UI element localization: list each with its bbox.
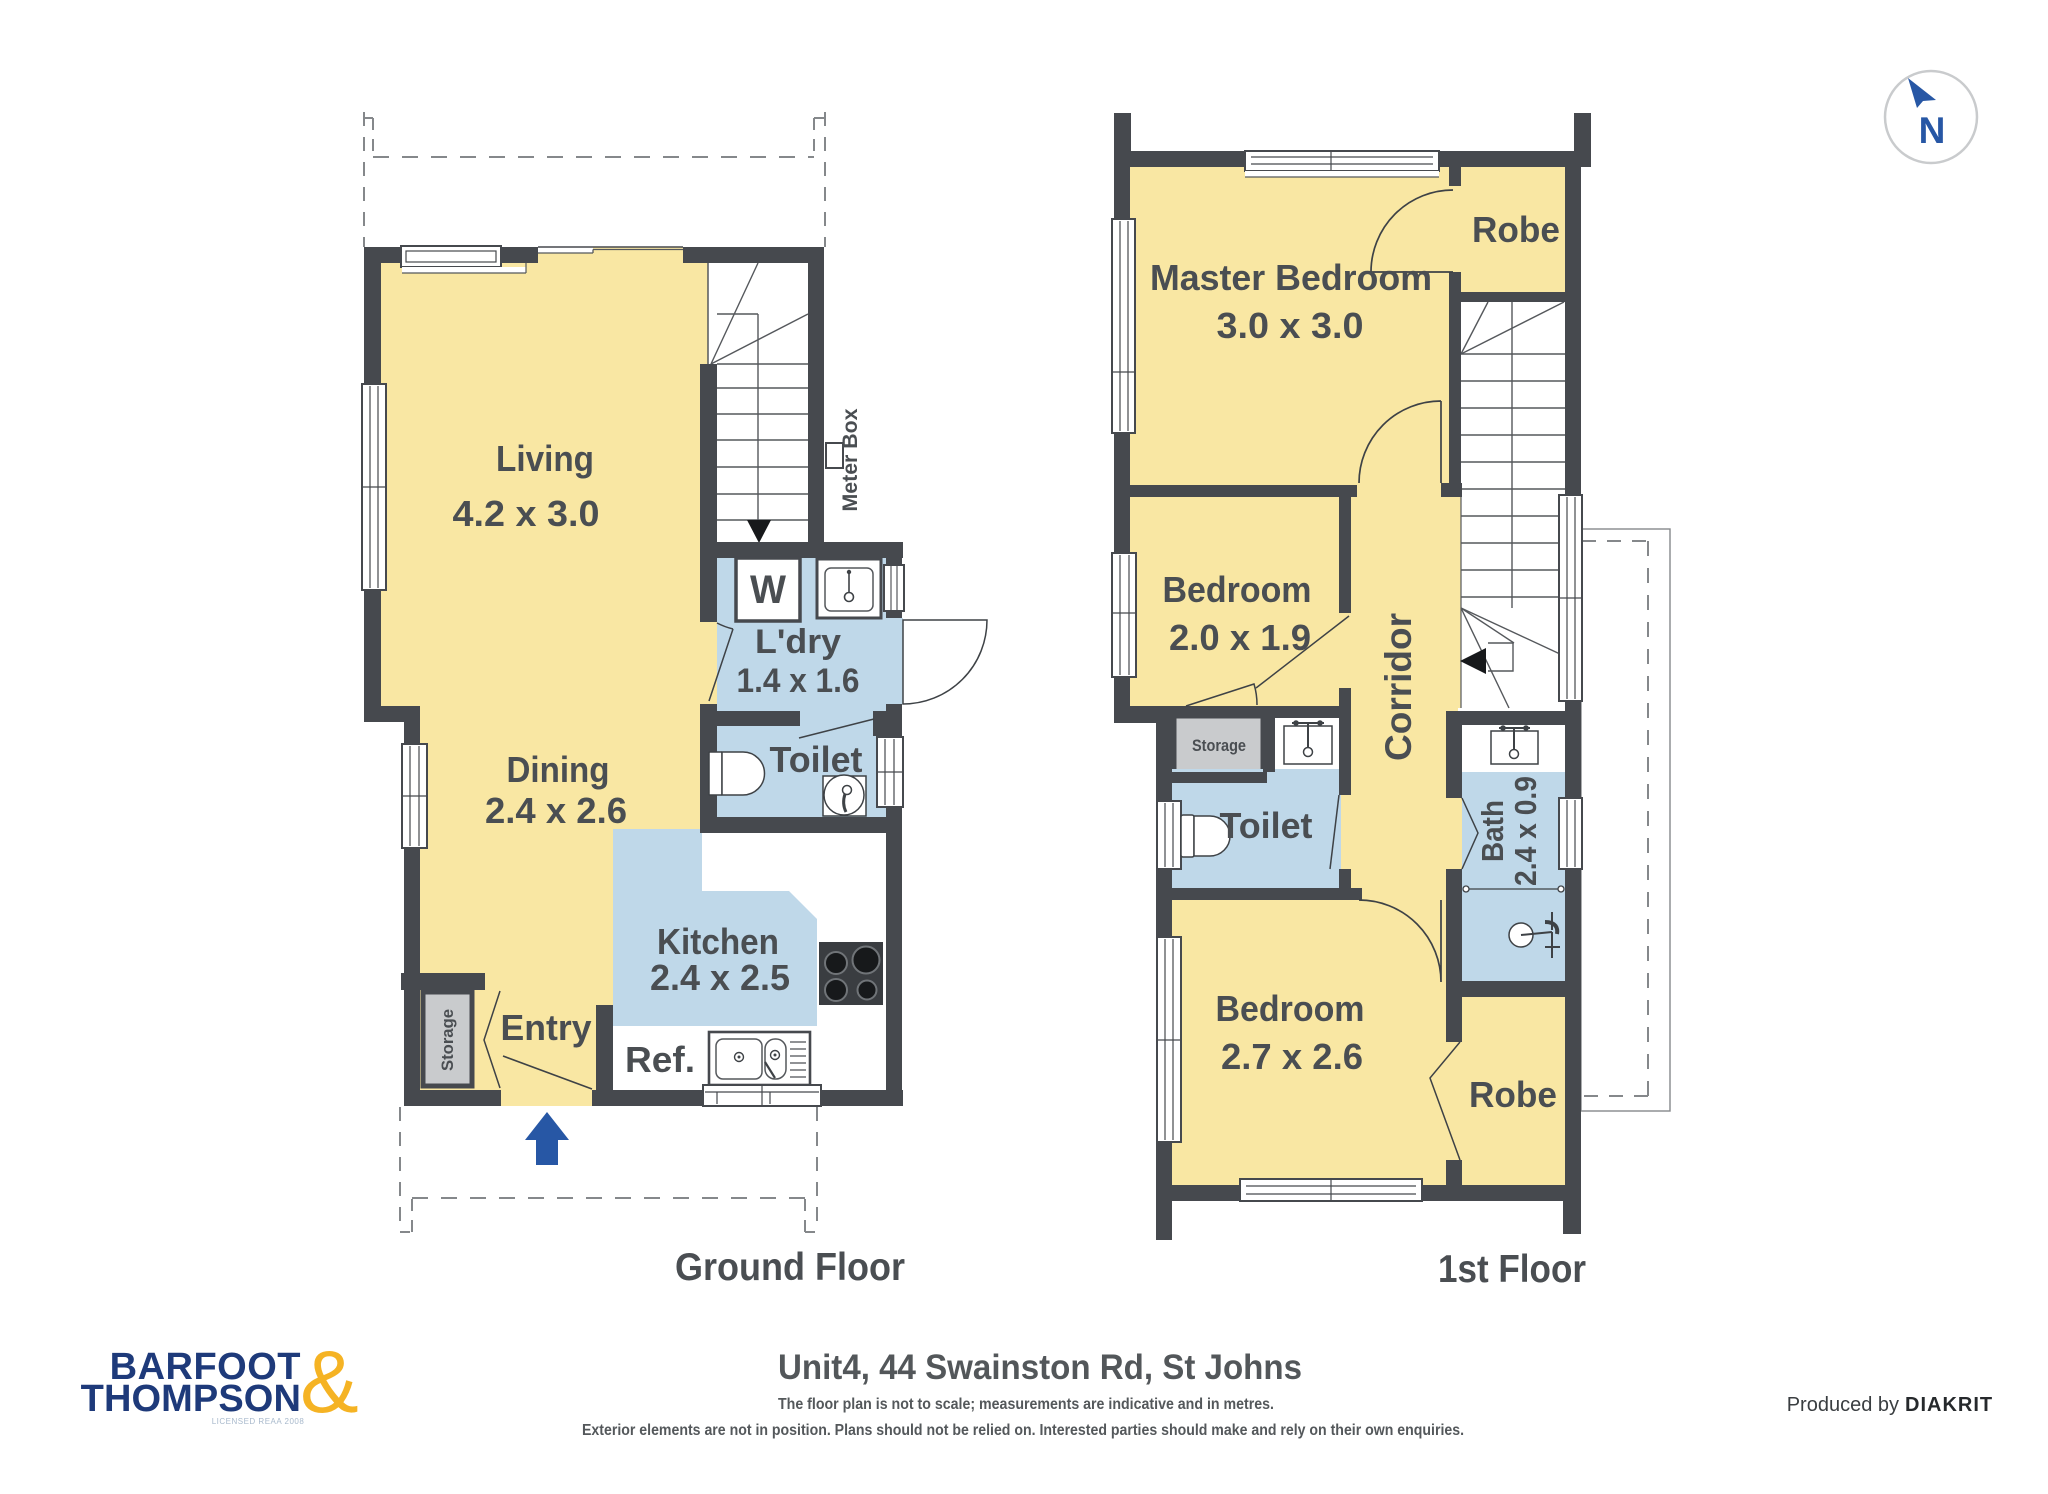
svg-text:Robe: Robe bbox=[1469, 1074, 1557, 1115]
svg-text:Exterior elements are not in p: Exterior elements are not in position. P… bbox=[582, 1422, 1464, 1439]
svg-text:2.4 x 2.6: 2.4 x 2.6 bbox=[485, 790, 627, 831]
svg-text:Toilet: Toilet bbox=[1220, 805, 1313, 846]
svg-text:LICENSED REAA 2008: LICENSED REAA 2008 bbox=[212, 1417, 305, 1426]
svg-text:1st Floor: 1st Floor bbox=[1438, 1248, 1586, 1291]
svg-text:Unit4, 44 Swainston Rd, St Joh: Unit4, 44 Swainston Rd, St Johns bbox=[778, 1348, 1302, 1387]
svg-text:The floor plan is not to scale: The floor plan is not to scale; measurem… bbox=[778, 1396, 1274, 1413]
svg-text:L'dry: L'dry bbox=[755, 623, 841, 661]
svg-text:Storage: Storage bbox=[1192, 736, 1246, 755]
svg-text:N: N bbox=[1919, 110, 1946, 151]
svg-text:Ref.: Ref. bbox=[625, 1039, 695, 1080]
svg-text:2.7 x 2.6: 2.7 x 2.6 bbox=[1221, 1036, 1363, 1077]
svg-text:DIAKRIT: DIAKRIT bbox=[1905, 1394, 1993, 1416]
svg-text:Corridor: Corridor bbox=[1378, 613, 1419, 761]
svg-text:3.0 x 3.0: 3.0 x 3.0 bbox=[1217, 305, 1364, 346]
svg-text:Meter Box: Meter Box bbox=[839, 408, 862, 511]
svg-text:Bath: Bath bbox=[1475, 800, 1510, 862]
svg-text:2.4 x 2.5: 2.4 x 2.5 bbox=[650, 957, 790, 998]
svg-text:W: W bbox=[750, 568, 786, 612]
svg-text:Robe: Robe bbox=[1472, 209, 1560, 250]
svg-text:Living: Living bbox=[496, 438, 594, 479]
svg-text:THOMPSON: THOMPSON bbox=[81, 1378, 301, 1420]
svg-text:Storage: Storage bbox=[438, 1009, 457, 1071]
svg-text:2.0 x 1.9: 2.0 x 1.9 bbox=[1169, 617, 1311, 658]
svg-text:4.2 x 3.0: 4.2 x 3.0 bbox=[453, 493, 600, 534]
svg-text:Entry: Entry bbox=[501, 1007, 592, 1048]
svg-text:Bedroom: Bedroom bbox=[1216, 988, 1365, 1029]
svg-text:Bedroom: Bedroom bbox=[1163, 569, 1312, 610]
svg-text:2.4 x 0.9: 2.4 x 0.9 bbox=[1508, 776, 1543, 886]
svg-text:Kitchen: Kitchen bbox=[657, 921, 779, 962]
svg-text:Produced by: Produced by bbox=[1787, 1394, 1899, 1416]
svg-text:Ground Floor: Ground Floor bbox=[675, 1246, 905, 1289]
svg-text:Dining: Dining bbox=[507, 749, 610, 790]
svg-text:Toilet: Toilet bbox=[770, 739, 863, 780]
svg-text:&: & bbox=[300, 1332, 359, 1431]
svg-text:Master Bedroom: Master Bedroom bbox=[1150, 257, 1432, 298]
svg-text:1.4 x 1.6: 1.4 x 1.6 bbox=[737, 662, 860, 700]
